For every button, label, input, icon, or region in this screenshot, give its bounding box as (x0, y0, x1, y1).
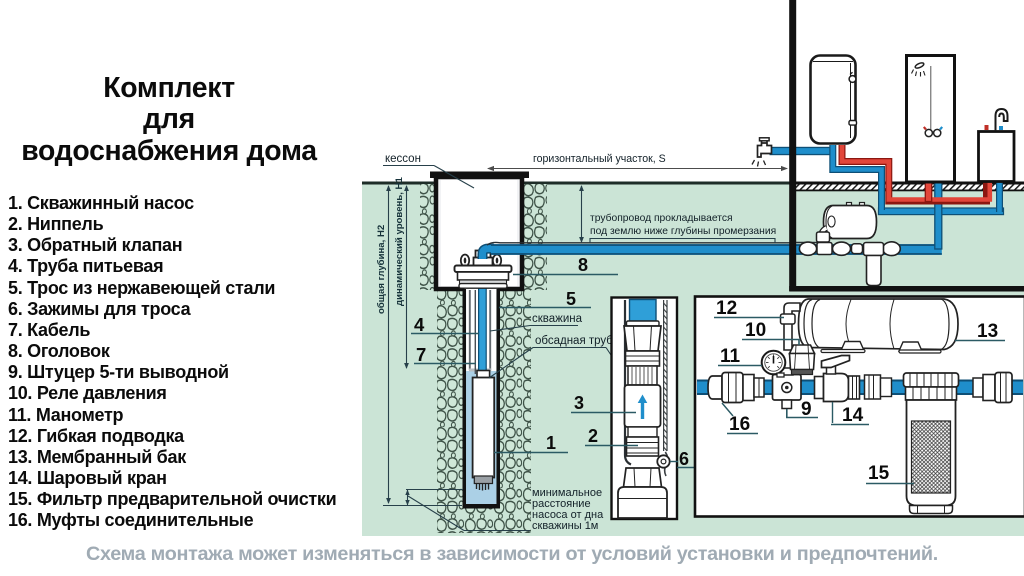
svg-text:под землю ниже глубины промерз: под землю ниже глубины промерзания (590, 225, 776, 237)
svg-text:6: 6 (679, 449, 689, 469)
svg-text:9: 9 (801, 399, 812, 420)
svg-text:1: 1 (546, 433, 556, 453)
svg-text:2: 2 (588, 426, 598, 446)
svg-text:скважина: скважина (532, 313, 583, 325)
svg-text:15: 15 (868, 463, 890, 484)
svg-text:трубопровод прокладывается: трубопровод прокладывается (590, 212, 733, 224)
svg-text:общая глубина, Н2: общая глубина, Н2 (376, 225, 387, 314)
svg-text:8: 8 (578, 255, 588, 275)
svg-text:скважины 1м: скважины 1м (532, 520, 598, 532)
svg-text:5: 5 (566, 289, 576, 309)
svg-text:обсадная труба: обсадная труба (535, 335, 620, 347)
svg-text:14: 14 (842, 405, 864, 426)
svg-text:10: 10 (745, 320, 766, 341)
svg-text:13: 13 (977, 321, 998, 342)
svg-text:7: 7 (416, 344, 426, 365)
svg-text:16: 16 (729, 414, 750, 435)
svg-text:кессон: кессон (385, 153, 421, 165)
svg-text:4: 4 (414, 314, 425, 335)
svg-text:горизонтальный участок, S: горизонтальный участок, S (533, 153, 666, 165)
svg-text:динамический уровень, Н1: динамический уровень, Н1 (394, 177, 405, 306)
svg-text:11: 11 (720, 346, 741, 367)
svg-text:3: 3 (574, 393, 584, 413)
svg-text:12: 12 (716, 298, 737, 319)
